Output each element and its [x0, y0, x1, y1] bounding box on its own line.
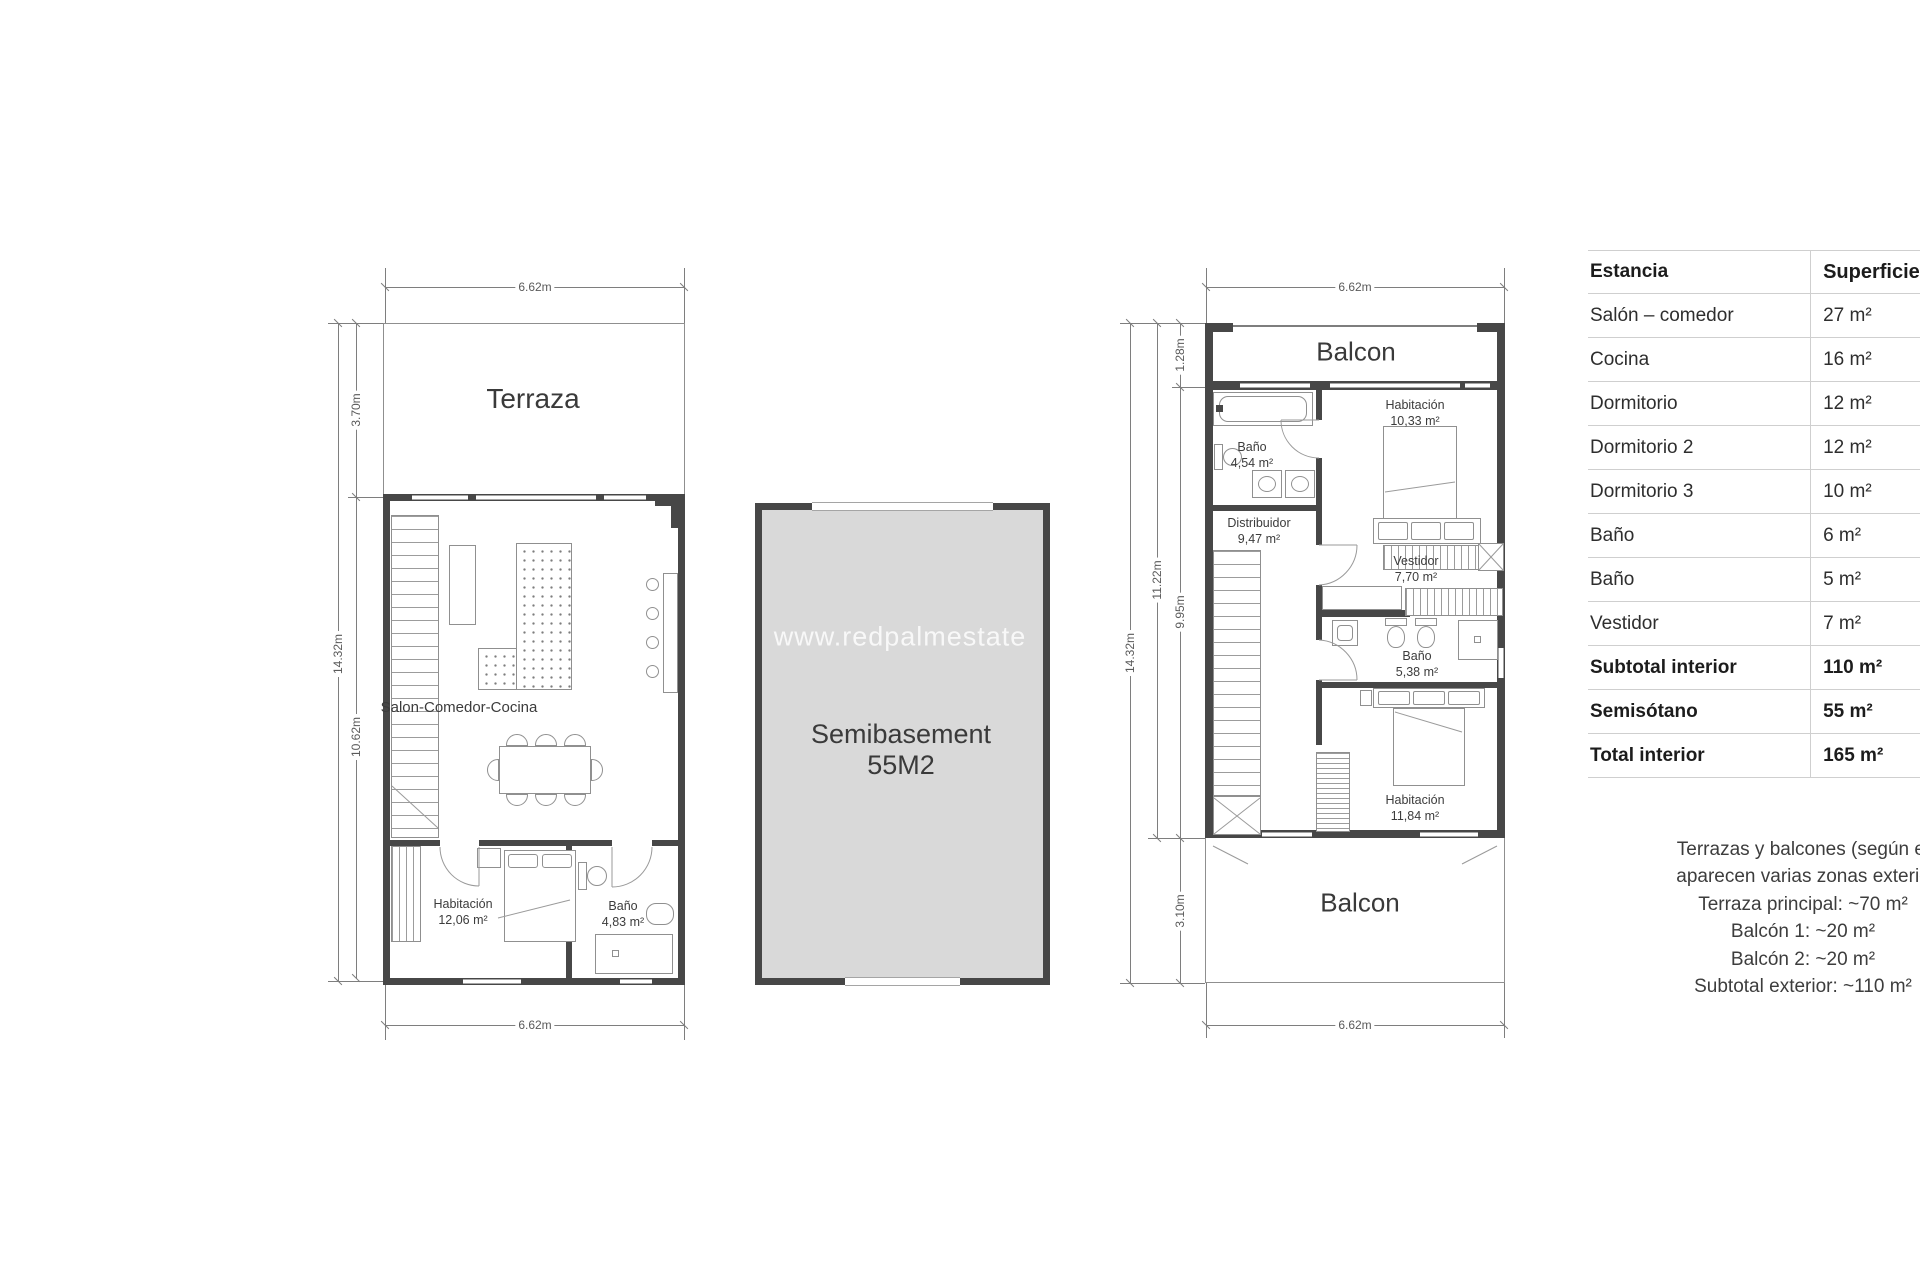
staircase	[391, 515, 439, 838]
table-row: Salón – comedor 27 m²	[1588, 294, 1920, 338]
bathtub-inner	[1219, 396, 1307, 422]
shower-drain	[612, 950, 619, 957]
room-name: Dormitorio 2	[1588, 437, 1810, 459]
dim-ext-line	[328, 981, 383, 982]
dim-ext-line	[1206, 268, 1207, 323]
dim-ext-line	[1120, 983, 1205, 984]
bath1-name: Baño	[1237, 440, 1266, 454]
basement-door-opening	[845, 977, 960, 986]
dim-label-top: 6.62m	[515, 280, 554, 294]
dim-ext-line	[1120, 323, 1205, 324]
table-row: Dormitorio 12 m²	[1588, 382, 1920, 426]
hall-label: Distribuidor 9,47 m²	[1227, 515, 1290, 547]
dim-label-interior: 10.62m	[349, 714, 363, 760]
pillow	[508, 854, 538, 868]
sofa-chaise	[478, 648, 517, 690]
bar-stool	[646, 636, 659, 649]
balcony-rail	[1233, 325, 1477, 327]
room-name: Subtotal interior	[1588, 657, 1810, 679]
room-name: Total interior	[1588, 745, 1810, 767]
cushion	[1378, 522, 1408, 540]
dim-ext-line	[385, 985, 386, 1040]
dining-chair	[564, 794, 586, 806]
dim-label-total: 14.32m	[331, 631, 345, 677]
bedroom-name: Habitación	[433, 897, 492, 911]
room-name: Dormitorio 3	[1588, 481, 1810, 503]
bed	[1393, 708, 1465, 786]
wardrobe	[1405, 588, 1503, 616]
dim-label-balcony-bottom: 3.10m	[1173, 891, 1187, 930]
window-side	[1498, 648, 1504, 678]
nightstand	[1360, 690, 1372, 706]
dim-ext-line	[348, 497, 383, 498]
room-name: Salón – comedor	[1588, 305, 1810, 327]
bed	[1383, 426, 1457, 521]
table-row: Dormitorio 2 12 m²	[1588, 426, 1920, 470]
dressing-label: Vestidor 7,70 m²	[1393, 553, 1438, 585]
dining-chair	[506, 794, 528, 806]
kitchen-island	[449, 545, 476, 625]
area-table-header: Estancia Superficie	[1588, 251, 1920, 294]
dining-chair	[535, 734, 557, 746]
stair-ladder	[1316, 752, 1350, 832]
dim-ext-line	[1206, 983, 1207, 1038]
room-name: Cocina	[1588, 349, 1810, 371]
dim-ext-line	[684, 268, 685, 323]
cushion	[1444, 522, 1474, 540]
room-name: Vestidor	[1588, 613, 1810, 635]
window	[620, 979, 652, 984]
dim-line	[1180, 323, 1181, 983]
notes-line: Balcón 1: ~20 m²	[1628, 918, 1920, 945]
bath1-label: Baño 4,54 m²	[1231, 439, 1273, 471]
shower-tray	[595, 934, 673, 974]
window	[1330, 383, 1460, 388]
notes-line: Terrazas y balcones (según el	[1628, 836, 1920, 863]
wall	[1205, 323, 1213, 838]
table-row: Dormitorio 3 10 m²	[1588, 470, 1920, 514]
toilet-bowl	[587, 866, 607, 886]
dim-ext-line	[385, 268, 386, 323]
room-area: 12 m²	[1810, 382, 1920, 425]
room-area: 165 m²	[1810, 734, 1920, 777]
table-row-subtotal: Subtotal interior 110 m²	[1588, 646, 1920, 690]
bath2-name: Baño	[1402, 649, 1431, 663]
basement-label: Semibasement 55M2	[811, 719, 991, 781]
bar-stool	[646, 578, 659, 591]
dim-label-bottom: 6.62m	[1335, 1018, 1374, 1032]
toilet-tank	[1214, 444, 1223, 470]
table-row: Cocina 16 m²	[1588, 338, 1920, 382]
dining-chair	[506, 734, 528, 746]
basement-label-line2: 55M2	[867, 750, 935, 780]
wall-partition	[1317, 610, 1410, 617]
room-area: 27 m²	[1810, 294, 1920, 337]
bath2-label: Baño 5,38 m²	[1396, 648, 1438, 680]
notes-line: Subtotal exterior: ~110 m²	[1628, 973, 1920, 1000]
dressing-name: Vestidor	[1393, 554, 1438, 568]
hall-area: 9,47 m²	[1238, 532, 1280, 546]
bathtub-tap	[1216, 405, 1223, 412]
terrace-label: Terraza	[486, 383, 579, 415]
window	[1262, 832, 1312, 837]
room-area: 12 m²	[1810, 426, 1920, 469]
cushion	[1411, 522, 1441, 540]
wardrobe	[391, 846, 421, 942]
basement-door-opening	[812, 502, 993, 511]
pillow	[542, 854, 572, 868]
cushion	[1448, 691, 1480, 705]
table-row-semibasement: Semisótano 55 m²	[1588, 690, 1920, 734]
balcony-top-label: Balcon	[1316, 337, 1396, 368]
room-area: 5 m²	[1810, 558, 1920, 601]
exterior-notes: Terrazas y balcones (según el aparecen v…	[1628, 836, 1920, 1000]
kitchen-bar-counter	[663, 573, 678, 693]
bedroom2-area: 11,84 m²	[1391, 809, 1439, 823]
room-name: Baño	[1588, 525, 1810, 547]
floorplan-page: { "watermark_text": "www.redpalmestate",…	[0, 0, 1920, 1280]
stair-landing	[1213, 796, 1261, 835]
window	[476, 495, 596, 500]
dim-label-terrace: 3.70m	[349, 390, 363, 429]
dim-label-bottom: 6.62m	[515, 1018, 554, 1032]
window	[463, 979, 521, 984]
room-area: 10 m²	[1810, 470, 1920, 513]
table-row-total: Total interior 165 m²	[1588, 734, 1920, 778]
wall-partition	[1205, 505, 1322, 511]
dim-label-total: 14.32m	[1123, 630, 1137, 676]
sink-basin	[1291, 476, 1309, 492]
bath1-area: 4,54 m²	[1231, 456, 1273, 470]
room-area: 55 m²	[1810, 690, 1920, 733]
room-name: Dormitorio	[1588, 393, 1810, 415]
bedroom2-label: Habitación 11,84 m²	[1385, 792, 1444, 824]
dim-label-interior: 9.95m	[1173, 592, 1187, 631]
toilet-tank	[1385, 618, 1407, 626]
bath-label: Baño 4,83 m²	[602, 898, 644, 930]
dining-chair	[564, 734, 586, 746]
bar-stool	[646, 665, 659, 678]
cushion	[1378, 691, 1410, 705]
wall-partition	[1316, 680, 1322, 745]
bath2-area: 5,38 m²	[1396, 665, 1438, 679]
shower-drain	[1474, 636, 1481, 643]
bedroom1-label: Habitación 10,33 m²	[1385, 397, 1444, 429]
notes-line: Terraza principal: ~70 m²	[1628, 891, 1920, 918]
bedroom-label: Habitación 12,06 m²	[433, 896, 492, 928]
hall-name: Distribuidor	[1227, 516, 1290, 530]
col-header-room: Estancia	[1588, 261, 1810, 283]
room-area: 7 m²	[1810, 602, 1920, 645]
window	[604, 495, 646, 500]
bedroom-area: 12,06 m²	[438, 913, 487, 927]
bath-area: 4,83 m²	[602, 915, 644, 929]
salon-label: Salon-Comedor-Cocina	[381, 700, 538, 716]
cushion	[1413, 691, 1445, 705]
staircase	[1213, 550, 1261, 796]
dim-label-top: 6.62m	[1335, 280, 1374, 294]
room-area: 6 m²	[1810, 514, 1920, 557]
dim-ext-line	[1504, 983, 1505, 1038]
table-row: Baño 6 m²	[1588, 514, 1920, 558]
toilet-bowl	[1387, 626, 1405, 648]
bar-stool	[646, 607, 659, 620]
sink	[646, 903, 674, 925]
bedroom1-name: Habitación	[1385, 398, 1444, 412]
wall	[1497, 323, 1505, 838]
toilet-bowl	[1417, 626, 1435, 648]
window	[412, 495, 468, 500]
dining-chair	[535, 794, 557, 806]
bedroom2-name: Habitación	[1385, 793, 1444, 807]
window	[1240, 383, 1310, 388]
bedroom1-area: 10,33 m²	[1390, 414, 1439, 428]
dressing-counter	[1322, 586, 1402, 610]
window	[1420, 832, 1478, 837]
dim-ext-line	[1504, 268, 1505, 323]
sink-basin	[1337, 625, 1353, 641]
dressing-area: 7,70 m²	[1395, 570, 1437, 584]
wall-partition	[1316, 458, 1322, 545]
dim-ext-line	[1172, 387, 1205, 388]
toilet-tank	[578, 862, 587, 890]
table-row: Baño 5 m²	[1588, 558, 1920, 602]
wall	[678, 494, 685, 985]
table-row: Vestidor 7 m²	[1588, 602, 1920, 646]
dim-ext-line	[684, 985, 685, 1040]
notes-line: aparecen varias zonas exterio	[1628, 863, 1920, 890]
notes-line: Balcón 2: ~20 m²	[1628, 946, 1920, 973]
dining-table	[499, 746, 591, 794]
dining-chair	[591, 759, 603, 781]
room-area: 16 m²	[1810, 338, 1920, 381]
room-area: 110 m²	[1810, 646, 1920, 689]
sink-basin	[1258, 476, 1276, 492]
crossed-box	[1478, 543, 1504, 571]
dining-chair	[487, 759, 499, 781]
room-name: Semisótano	[1588, 701, 1810, 723]
bath-name: Baño	[608, 899, 637, 913]
room-name: Baño	[1588, 569, 1810, 591]
wall	[383, 494, 390, 985]
wall-partition	[479, 840, 612, 846]
sofa	[516, 543, 572, 690]
watermark: www.redpalmestate	[774, 622, 1027, 653]
area-table: Estancia Superficie Salón – comedor 27 m…	[1588, 250, 1920, 778]
wall-partition	[1316, 390, 1322, 420]
toilet-tank	[1415, 618, 1437, 626]
balcony-bottom-label: Balcon	[1320, 888, 1400, 919]
col-header-area: Superficie	[1810, 251, 1920, 293]
wall-kitchen-corner	[671, 494, 685, 528]
dim-label-balcony-top: 1.28m	[1173, 335, 1187, 374]
window	[1465, 383, 1490, 388]
basement-label-line1: Semibasement	[811, 719, 991, 749]
dim-label-upper: 11.22m	[1150, 557, 1164, 602]
nightstand	[477, 848, 501, 868]
wall-partition	[652, 840, 678, 846]
